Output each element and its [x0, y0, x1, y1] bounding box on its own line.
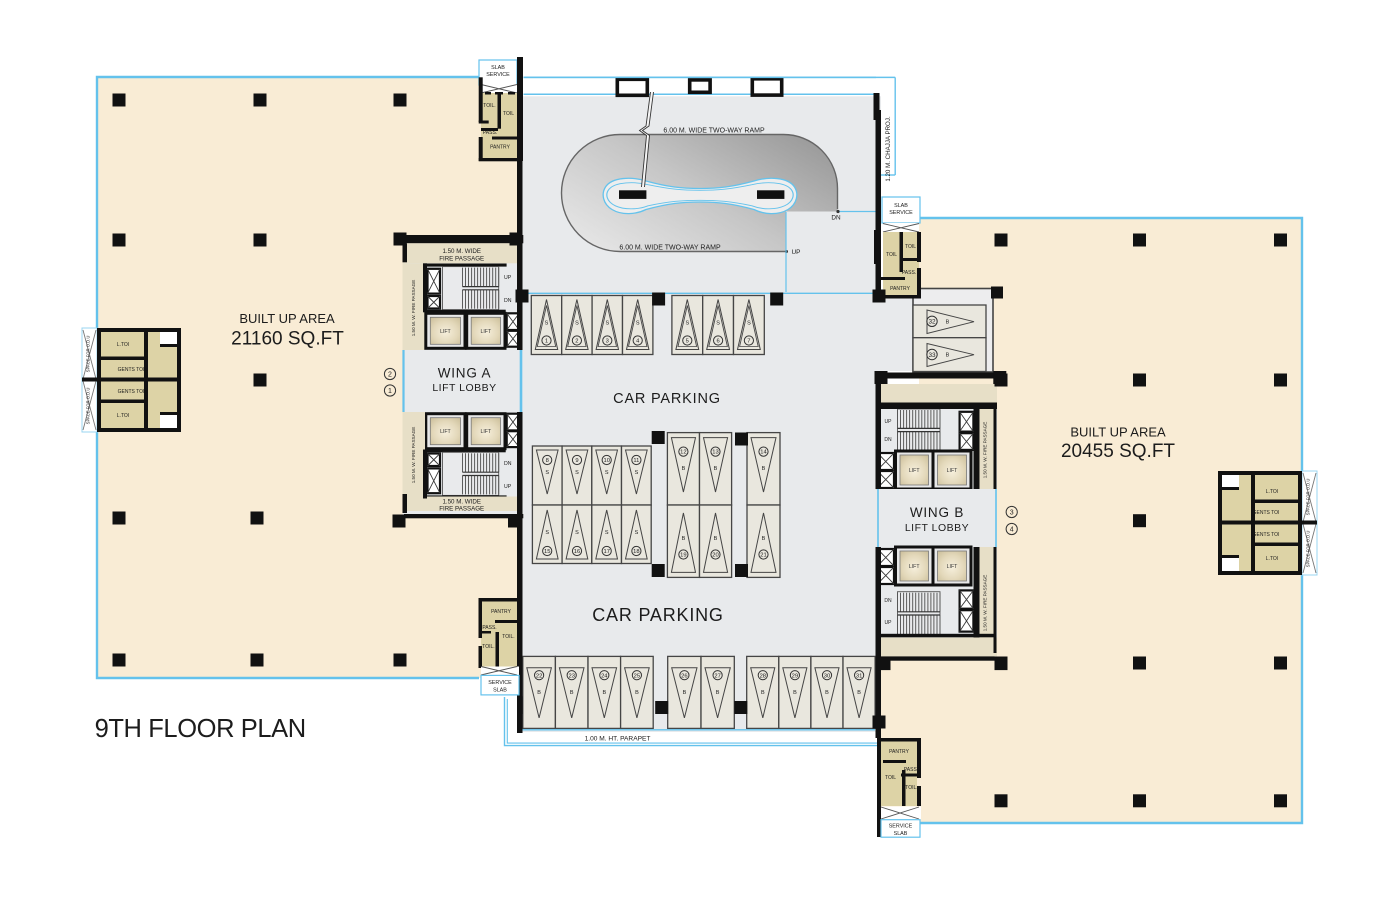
svg-text:11: 11 [633, 458, 639, 464]
svg-text:TOIL.: TOIL. [502, 634, 514, 640]
svg-text:B: B [946, 353, 950, 359]
svg-text:S: S [575, 530, 579, 536]
svg-text:13: 13 [712, 450, 718, 456]
svg-text:GENTS TOI: GENTS TOI [1253, 532, 1280, 538]
svg-text:S: S [635, 530, 639, 536]
svg-text:28: 28 [760, 673, 766, 679]
svg-text:1.50 M. WIDE: 1.50 M. WIDE [442, 498, 481, 505]
svg-text:LIFT: LIFT [947, 564, 958, 570]
svg-text:LIFT: LIFT [440, 329, 451, 335]
svg-text:DN: DN [504, 461, 512, 467]
svg-text:B: B [602, 690, 606, 696]
svg-text:L.TOI: L.TOI [1266, 556, 1278, 562]
svg-text:8: 8 [546, 458, 549, 464]
svg-text:LIFT: LIFT [440, 429, 451, 435]
svg-text:B: B [714, 466, 718, 472]
svg-text:B: B [762, 536, 766, 542]
svg-text:WING A: WING A [438, 366, 492, 381]
svg-text:30: 30 [824, 673, 830, 679]
svg-text:9: 9 [575, 458, 578, 464]
svg-text:TOIL.: TOIL. [483, 103, 495, 109]
svg-text:9TH FLOOR PLAN: 9TH FLOOR PLAN [95, 715, 306, 743]
svg-text:B: B [762, 466, 766, 472]
svg-text:PASS.: PASS. [902, 270, 916, 276]
svg-text:B: B [683, 690, 687, 696]
svg-text:10: 10 [603, 458, 609, 464]
svg-text:LIFT: LIFT [947, 468, 958, 474]
svg-text:SLAB: SLAB [894, 831, 908, 837]
svg-text:B: B [946, 320, 950, 326]
svg-text:20: 20 [712, 553, 718, 559]
svg-text:SPACE FOR O.D.U: SPACE FOR O.D.U [86, 336, 91, 373]
svg-text:27: 27 [714, 673, 720, 679]
svg-text:DN: DN [831, 215, 841, 222]
svg-text:FIRE PASSAGE: FIRE PASSAGE [439, 505, 484, 512]
svg-text:WING B: WING B [910, 505, 964, 520]
svg-text:S: S [545, 530, 549, 536]
svg-text:S: S [545, 321, 549, 327]
svg-text:LIFT: LIFT [480, 329, 491, 335]
svg-text:2: 2 [575, 339, 578, 345]
svg-text:UP: UP [885, 419, 893, 425]
svg-text:SLAB: SLAB [894, 203, 908, 209]
svg-text:18: 18 [633, 549, 639, 555]
svg-text:7: 7 [747, 339, 750, 345]
svg-text:16: 16 [574, 549, 580, 555]
svg-text:B: B [857, 690, 861, 696]
svg-text:33: 33 [928, 352, 936, 359]
svg-text:CAR PARKING: CAR PARKING [613, 391, 721, 407]
svg-text:B: B [714, 536, 718, 542]
svg-text:1.50 M. W. FIRE PASSAGE: 1.50 M. W. FIRE PASSAGE [411, 427, 416, 484]
svg-text:B: B [716, 690, 720, 696]
svg-text:25: 25 [634, 673, 640, 679]
svg-text:PANTRY: PANTRY [491, 609, 511, 615]
svg-text:LIFT: LIFT [909, 564, 920, 570]
svg-text:12: 12 [680, 450, 686, 456]
svg-text:L.TOI: L.TOI [1266, 489, 1278, 495]
svg-text:26: 26 [681, 673, 687, 679]
svg-text:PASS.: PASS. [482, 625, 496, 631]
svg-text:3: 3 [606, 339, 609, 345]
svg-text:TOIL: TOIL [503, 111, 514, 117]
svg-text:17: 17 [603, 549, 609, 555]
svg-text:S: S [605, 530, 609, 536]
svg-text:UP: UP [885, 620, 893, 626]
svg-text:L.TOI: L.TOI [117, 342, 129, 348]
svg-text:24: 24 [601, 673, 608, 679]
svg-text:PASS.: PASS. [904, 767, 918, 773]
svg-text:S: S [575, 470, 579, 476]
svg-text:UP: UP [504, 275, 512, 281]
svg-text:6: 6 [716, 339, 719, 345]
svg-text:2: 2 [388, 372, 392, 379]
svg-text:TOIL: TOIL [886, 252, 897, 258]
svg-text:UP: UP [504, 484, 512, 490]
svg-text:6.00 M. WIDE TWO-WAY RAMP: 6.00 M. WIDE TWO-WAY RAMP [663, 128, 765, 135]
svg-text:BUILT UP AREA: BUILT UP AREA [1070, 425, 1166, 440]
svg-text:SERVICE: SERVICE [486, 72, 510, 78]
svg-text:22: 22 [536, 673, 542, 679]
svg-text:BUILT UP AREA: BUILT UP AREA [239, 311, 335, 326]
svg-text:LIFT: LIFT [480, 429, 491, 435]
svg-text:PANTRY: PANTRY [889, 749, 909, 755]
svg-text:DN: DN [884, 437, 892, 443]
svg-text:S: S [635, 470, 639, 476]
svg-text:DN: DN [504, 298, 512, 304]
svg-text:29: 29 [792, 673, 798, 679]
svg-text:B: B [761, 690, 765, 696]
svg-text:S: S [605, 470, 609, 476]
svg-text:L.TOI: L.TOI [117, 413, 129, 419]
svg-text:GENTS TOI: GENTS TOI [1253, 510, 1280, 516]
svg-text:TOIL: TOIL [885, 775, 896, 781]
svg-text:1.50 M. W. FIRE PASSAGE: 1.50 M. W. FIRE PASSAGE [411, 280, 416, 337]
svg-text:S: S [685, 321, 689, 327]
svg-text:SPACE FOR O.D.U: SPACE FOR O.D.U [1306, 479, 1311, 516]
svg-text:6.00 M. WIDE TWO-WAY RAMP: 6.00 M. WIDE TWO-WAY RAMP [619, 245, 721, 252]
svg-text:14: 14 [760, 450, 767, 456]
svg-text:S: S [747, 321, 751, 327]
svg-text:B: B [570, 690, 574, 696]
svg-text:B: B [682, 466, 686, 472]
svg-text:4: 4 [1010, 527, 1014, 534]
svg-text:TOIL.: TOIL. [905, 785, 917, 791]
svg-text:S: S [636, 321, 640, 327]
svg-text:S: S [545, 470, 549, 476]
svg-text:19: 19 [680, 553, 686, 559]
svg-text:23: 23 [568, 673, 574, 679]
svg-text:FIRE PASSAGE: FIRE PASSAGE [439, 256, 484, 263]
svg-text:PASS.: PASS. [483, 130, 497, 136]
svg-text:31: 31 [856, 673, 862, 679]
svg-text:20455 SQ.FT: 20455 SQ.FT [1061, 441, 1175, 462]
svg-text:LIFT LOBBY: LIFT LOBBY [432, 382, 496, 394]
svg-text:DN: DN [884, 598, 892, 604]
svg-text:B: B [537, 690, 541, 696]
svg-text:1: 1 [388, 388, 392, 395]
svg-text:S: S [716, 321, 720, 327]
svg-text:SLAB: SLAB [493, 688, 507, 694]
svg-text:SLAB: SLAB [491, 65, 505, 71]
svg-text:1.50 M. W. FIRE PASSAGE: 1.50 M. W. FIRE PASSAGE [983, 422, 988, 479]
svg-text:B: B [825, 690, 829, 696]
svg-text:PANTRY: PANTRY [890, 286, 910, 292]
svg-text:1.20 M. CHAJJA PROJ.: 1.20 M. CHAJJA PROJ. [885, 116, 892, 182]
svg-text:TOIL: TOIL [905, 244, 916, 250]
svg-text:GENTS TOI: GENTS TOI [118, 389, 145, 395]
svg-text:PANTRY: PANTRY [490, 145, 510, 151]
svg-text:SPACE FOR O.D.U: SPACE FOR O.D.U [86, 388, 91, 425]
svg-text:LIFT: LIFT [909, 468, 920, 474]
svg-text:TOIL.: TOIL. [482, 644, 494, 650]
svg-text:B: B [635, 690, 639, 696]
svg-text:UP: UP [792, 249, 801, 256]
svg-text:CAR PARKING: CAR PARKING [592, 605, 724, 625]
svg-text:B: B [682, 536, 686, 542]
svg-text:21: 21 [760, 553, 766, 559]
svg-text:1.00 M. HT. PARAPET: 1.00 M. HT. PARAPET [585, 736, 651, 743]
svg-text:LIFT LOBBY: LIFT LOBBY [905, 522, 969, 534]
svg-text:GENTS TOI: GENTS TOI [118, 367, 145, 373]
svg-text:B: B [793, 690, 797, 696]
svg-text:32: 32 [928, 319, 936, 326]
svg-text:SERVICE: SERVICE [889, 210, 913, 216]
svg-text:S: S [575, 321, 579, 327]
svg-text:SPACE FOR O.D.U: SPACE FOR O.D.U [1306, 531, 1311, 568]
svg-text:21160 SQ.FT: 21160 SQ.FT [231, 329, 344, 350]
svg-text:15: 15 [544, 549, 550, 555]
svg-text:1.50 M. W. FIRE PASSAGE: 1.50 M. W. FIRE PASSAGE [983, 575, 988, 632]
svg-text:SERVICE: SERVICE [488, 680, 512, 686]
svg-text:S: S [605, 321, 609, 327]
svg-text:5: 5 [686, 339, 689, 345]
svg-text:1: 1 [545, 339, 548, 345]
svg-text:1.50 M. WIDE: 1.50 M. WIDE [442, 248, 481, 255]
svg-text:SERVICE: SERVICE [889, 824, 913, 830]
svg-text:3: 3 [1010, 510, 1014, 517]
